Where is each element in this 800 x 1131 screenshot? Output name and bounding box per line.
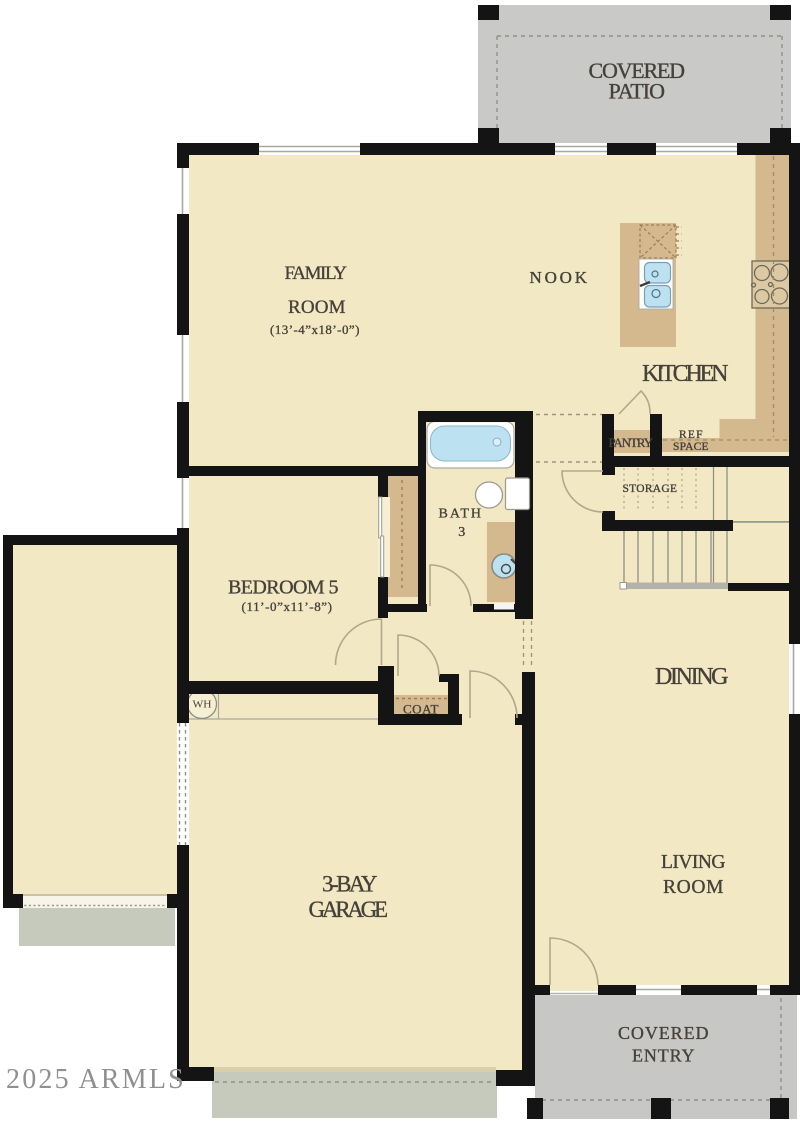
svg-text:PATIO: PATIO [609,79,666,104]
svg-text:STORAGE: STORAGE [623,483,678,495]
svg-text:COAT: COAT [403,702,439,717]
svg-text:(13’-4”x18’-0”): (13’-4”x18’-0”) [270,322,360,337]
svg-text:ENTRY: ENTRY [632,1046,695,1066]
svg-text:3-BAY: 3-BAY [322,872,378,897]
svg-text:GARAGE: GARAGE [309,897,389,922]
svg-text:PANTRY: PANTRY [609,435,654,450]
svg-text:SPACE: SPACE [673,441,709,453]
svg-text:ROOM: ROOM [288,297,346,318]
svg-text:(11’-0”x11’-8”): (11’-0”x11’-8”) [242,599,333,614]
svg-text:ROOM: ROOM [663,877,724,898]
svg-text:LIVING: LIVING [661,852,726,873]
svg-text:3: 3 [458,525,466,540]
svg-text:BATH: BATH [439,507,482,522]
svg-text:DINING: DINING [655,664,729,690]
svg-text:COVERED: COVERED [618,1023,709,1043]
svg-text:KITCHEN: KITCHEN [642,361,729,387]
svg-text:REF: REF [679,429,703,441]
svg-text:FAMILY: FAMILY [285,263,348,284]
svg-text:2025 ARMLS: 2025 ARMLS [6,1064,186,1095]
svg-text:WH: WH [193,700,212,711]
svg-text:BEDROOM 5: BEDROOM 5 [228,577,339,599]
